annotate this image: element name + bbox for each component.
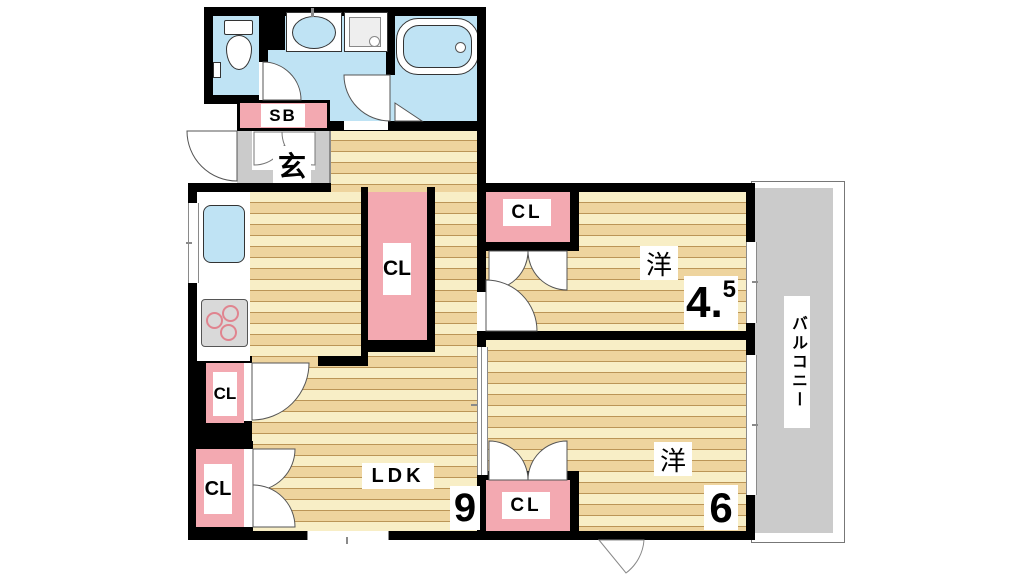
size-sup: 5	[723, 276, 736, 304]
ldk-size: 9	[450, 486, 480, 530]
western-room-1-label: 洋	[640, 246, 678, 280]
balcony-label: バルコニー	[784, 296, 810, 428]
door-arcs-layer	[0, 0, 1024, 576]
closet-label: CL	[502, 492, 550, 519]
ldk-label: LDK	[362, 463, 434, 489]
closet-label: CL	[204, 464, 232, 514]
western-room-2-size: 6	[704, 485, 738, 530]
toilet-door-arc	[263, 62, 301, 100]
room1-door-arc	[486, 280, 537, 331]
entry-door-arc	[187, 131, 237, 181]
closet-2-double-door	[253, 485, 295, 527]
western-room-1-size: 4. 5	[684, 276, 738, 330]
closet-label: CL	[383, 243, 411, 295]
room2-exterior-door	[599, 540, 644, 573]
size-main: 4.	[686, 278, 723, 328]
closet-1-door-arc	[252, 363, 309, 420]
floor-plan: SB 玄 CL CL CL CL CL 洋 4. 5 洋 6 LDK 9 バルコ…	[0, 0, 1024, 576]
shoe-box-label: SB	[261, 104, 305, 127]
western-room-2-label: 洋	[654, 442, 692, 476]
closet-label: CL	[213, 372, 237, 416]
closet-room2-bifold-door	[528, 441, 567, 480]
closet-room2-bifold-door	[489, 441, 528, 480]
closet-bifold-door	[528, 251, 567, 290]
bath-fold-door	[395, 103, 422, 121]
genkan-label: 玄	[273, 146, 311, 183]
closet-label: CL	[503, 199, 551, 226]
closet-2-double-door	[253, 449, 295, 491]
bathroom-door-arc	[344, 75, 390, 121]
